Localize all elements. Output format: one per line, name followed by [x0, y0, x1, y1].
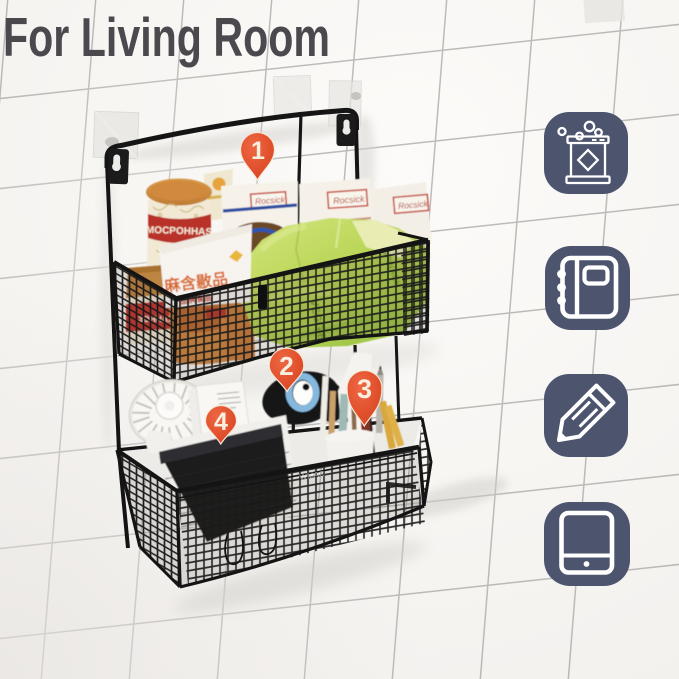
- svg-text:1: 1: [251, 137, 265, 165]
- svg-text:Rocsick: Rocsick: [255, 194, 286, 206]
- svg-text:For Living Room: For Living Room: [3, 6, 330, 68]
- svg-text:4: 4: [214, 408, 228, 436]
- svg-text:3: 3: [357, 374, 372, 404]
- svg-text:2: 2: [279, 351, 293, 381]
